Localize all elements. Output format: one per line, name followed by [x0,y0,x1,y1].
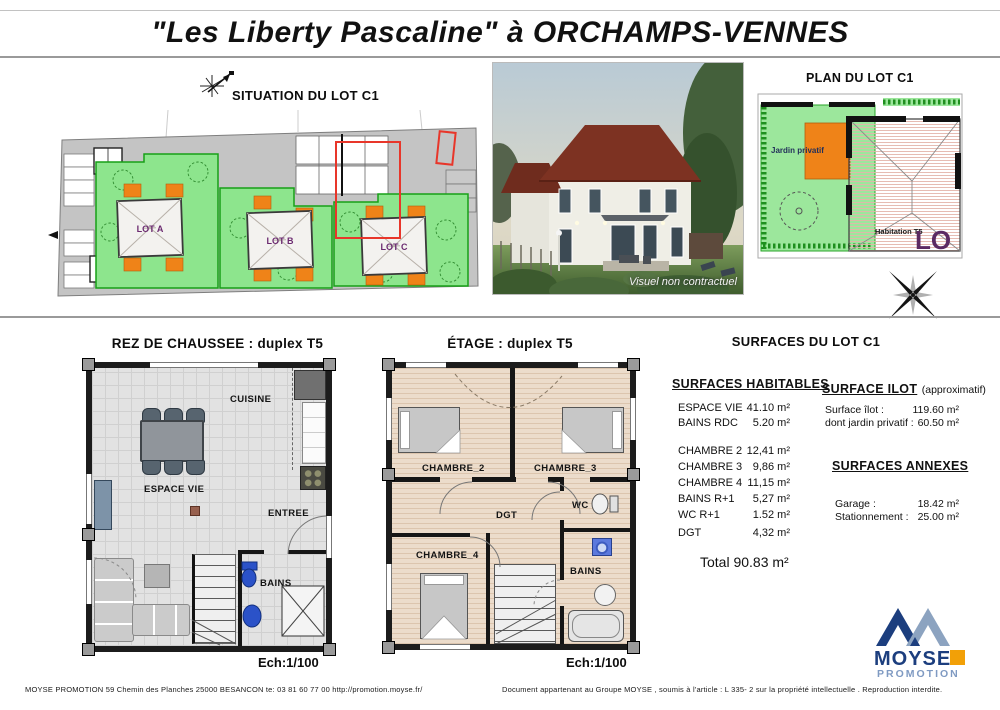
etage-wall [560,606,564,644]
rdc-sideboard [94,480,112,530]
sofa [94,558,134,642]
surface-row: dont jardin privatif : 60.50 m² [825,417,959,429]
surface-row: Surface îlot : 119.60 m² [825,404,959,416]
post [323,358,336,371]
page-title: "Les Liberty Pascaline" à ORCHAMPS-VENNE… [0,16,1000,50]
wc-label: WC [572,500,589,511]
surface-label: dont jardin privatif : [825,417,914,429]
rdc-espace-vie-label: ESPACE VIE [144,484,204,495]
surface-value: 4,32 m² [753,527,790,539]
plan-lot-drawing: Jardin privatif Habitation T5 LO [757,93,963,259]
logo-name: MOYSE [874,648,951,670]
surfaces-total: Total 90.83 m² [700,554,789,570]
etage-floorplan: CHAMBRE_2 CHAMBRE_3 DGT WC CHAMBRE_4 BAI… [386,362,636,650]
surface-value: 11,15 m² [747,477,790,489]
rdc-small-item [190,506,200,516]
rdc-fridge [294,370,326,400]
surface-label: WC R+1 [678,509,720,521]
etage-window-top-2 [578,362,618,368]
etage-wall [510,368,515,477]
rdc-wall [238,550,264,554]
chair [142,460,161,475]
surface-value: 60.50 m² [918,417,959,429]
house-render-photo: Visuel non contractuel [492,62,744,295]
moyse-logo: MOYSE PROMOTION [866,596,978,680]
rdc-wall [288,550,326,554]
situation-site-plan: LOT A LOT B LOT C [48,110,480,306]
sofa [132,604,190,636]
coffee-table [144,564,170,588]
chambre2-label: CHAMBRE_2 [422,463,485,474]
post [323,643,336,656]
etage-wall [392,533,470,537]
etage-scale-label: Ech:1/100 [566,655,627,670]
house-render-illustration [493,63,743,294]
surface-row: CHAMBRE 4 11,15 m² [678,477,790,489]
etage-wall [486,533,490,644]
surface-value: 18.42 m² [918,498,959,510]
document-page: "Les Liberty Pascaline" à ORCHAMPS-VENNE… [0,0,1000,710]
surface-label: ESPACE VIE [678,402,743,414]
habitables-heading: SURFACES HABITABLES [672,377,829,391]
surface-label: CHAMBRE 4 [678,477,742,489]
etage-wall [472,477,516,482]
etage-window-top-1 [406,362,446,368]
rdc-window-left-1 [86,474,92,524]
rdc-entree-label: ENTREE [268,508,309,519]
pillow [400,411,410,449]
ilot-heading-line: SURFACE ILOT (approximatif) [822,380,986,398]
surface-label: Surface îlot : [825,404,884,416]
dgt-label: DGT [496,510,517,521]
mid-divider [0,316,1000,318]
rdc-door-left [86,560,92,604]
situation-title: SITUATION DU LOT C1 [232,88,379,103]
pillow [424,575,464,585]
rdc-stairs [192,554,236,644]
plan-lot-title: PLAN DU LOT C1 [806,71,914,85]
surface-label: BAINS R+1 [678,493,735,505]
etage-bains-label: BAINS [570,566,602,577]
post [627,358,640,371]
rdc-cuisine-label: CUISINE [230,394,271,405]
surface-label: DGT [678,527,701,539]
etage-wall [560,528,630,532]
chair [186,460,205,475]
top-divider [0,10,1000,11]
jardin-label: Jardin privatif [771,146,824,155]
post [382,358,395,371]
ilot-note: (approximatif) [922,384,986,396]
rdc-stove [300,466,326,490]
moyse-logo-mark-icon: MOYSE PROMOTION [866,596,978,680]
surface-value: 5,27 m² [753,493,790,505]
rdc-window-top [150,362,258,368]
rdc-floorplan: CUISINE ESPACE VIE ENTREE BAINS [86,362,332,652]
footer-left: MOYSE PROMOTION 59 Chemin des Planches 2… [25,685,422,694]
etage-wall [590,477,630,482]
post [627,641,640,654]
surface-label: Stationnement : [835,511,909,523]
surface-value: 25.00 m² [918,511,959,523]
washing-machine [592,538,612,556]
chair [164,460,183,475]
ilot-heading: SURFACE ILOT [822,382,917,396]
surface-label: Garage : [835,498,876,510]
title-divider [0,56,1000,58]
surface-label: CHAMBRE 3 [678,461,742,473]
annexes-heading: SURFACES ANNEXES [832,459,968,473]
etage-window-bottom [420,644,470,650]
surface-value: 41.10 m² [747,402,790,414]
chambre3-label: CHAMBRE_3 [534,463,597,474]
rdc-scale-label: Ech:1/100 [258,655,319,670]
etage-wall [560,477,564,491]
surface-label: CHAMBRE 2 [678,445,742,457]
surface-row: WC R+1 1.52 m² [678,509,790,521]
surface-value: 12,41 m² [747,445,790,457]
pillow [612,411,622,449]
lot-a-label: LOT A [137,224,164,234]
surface-row: Garage : 18.42 m² [835,498,959,510]
surface-value: 119.60 m² [913,404,960,416]
surface-value: 5.20 m² [753,417,790,429]
footer-right: Document appartenant au Groupe MOYSE , s… [502,685,942,694]
post [382,468,395,481]
rdc-wall [238,554,242,646]
surface-row: ESPACE VIE 41.10 m² [678,402,790,414]
etage-wall [392,477,440,482]
etage-window-left-2 [386,564,392,610]
lot-c-label: LOT C [381,242,408,252]
rdc-title: REZ DE CHAUSSEE : duplex T5 [0,336,435,351]
surface-label: BAINS RDC [678,417,738,429]
etage-window-left-1 [386,398,392,440]
west-arrow-icon [48,231,58,239]
chambre4-label: CHAMBRE_4 [416,550,479,561]
surface-value: 9,86 m² [753,461,790,473]
post [82,358,95,371]
surface-value: 1.52 m² [753,509,790,521]
bathroom-sink [594,584,616,606]
etage-stairs [494,564,556,644]
rdc-bains-label: BAINS [260,578,292,589]
surface-row: Stationnement : 25.00 m² [835,511,959,523]
bathtub [568,610,624,642]
rdc-counter [302,402,326,464]
surface-row: BAINS RDC 5.20 m² [678,417,790,429]
surface-row: CHAMBRE 3 9,86 m² [678,461,790,473]
logo-subtitle: PROMOTION [877,668,960,680]
surface-row: DGT 4,32 m² [678,527,790,539]
lot-corner-label: LO [915,225,951,255]
dining-table [140,420,204,462]
photo-caption: Visuel non contractuel [629,276,737,288]
rdc-entry-door [326,516,332,558]
post [82,643,95,656]
etage-window-right [630,398,636,440]
etage-title: ÉTAGE : duplex T5 [380,336,640,351]
post [627,468,640,481]
rdc-kitchen-divider [292,368,293,470]
surfaces-title: SURFACES DU LOT C1 [656,334,956,349]
surface-row: BAINS R+1 5,27 m² [678,493,790,505]
post [382,641,395,654]
lot-b-label: LOT B [267,236,294,246]
post [82,528,95,541]
surface-row: CHAMBRE 2 12,41 m² [678,445,790,457]
